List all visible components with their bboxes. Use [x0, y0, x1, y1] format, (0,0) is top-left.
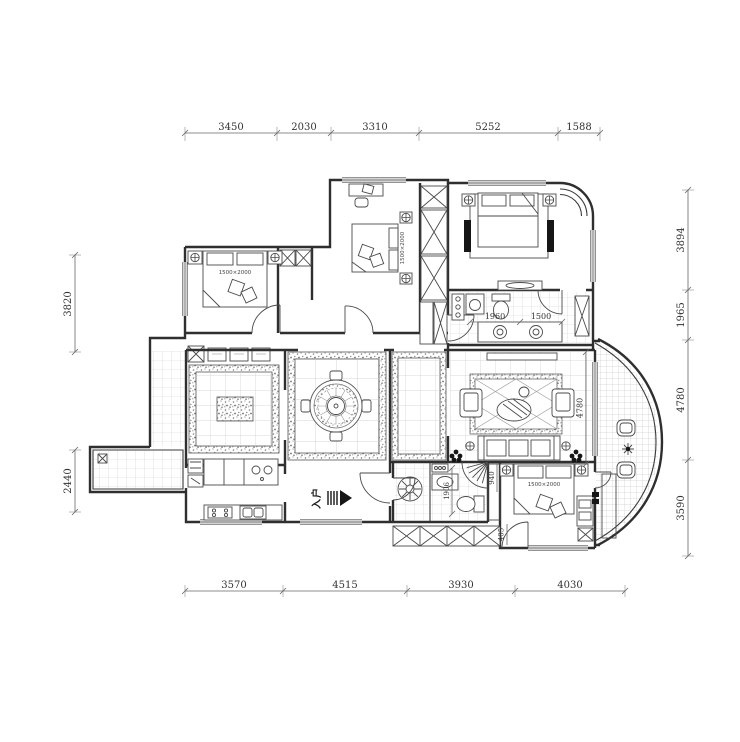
- pillow: [389, 228, 398, 248]
- bed-size-label: 1500×2000: [400, 231, 406, 264]
- toilet: [457, 497, 475, 512]
- curved-balcony-floor: [596, 341, 659, 545]
- bedroom-bottomright: 1500×2000: [500, 464, 599, 541]
- dim-top-5: 1588: [566, 122, 591, 133]
- dining-chair: [330, 371, 342, 380]
- dim-right-3: 4780: [676, 387, 687, 412]
- pillow: [237, 253, 263, 265]
- laundry-floor: [394, 464, 428, 520]
- master-bedroom: [462, 193, 556, 290]
- door-entry: [360, 473, 390, 503]
- coffee-table: [497, 399, 531, 421]
- dining-table: [328, 398, 345, 415]
- window: [590, 230, 597, 282]
- dim-living-height: 4780: [576, 398, 585, 418]
- vanity-counter: [478, 322, 562, 342]
- dim-right-4: 3590: [676, 495, 687, 520]
- desk-chair: [355, 198, 368, 207]
- door-bedroom-middle: [345, 306, 373, 333]
- entry-label: 入户: [310, 487, 323, 509]
- dim-bottom-1: 3570: [221, 580, 246, 591]
- window: [300, 519, 362, 526]
- toilet-tank: [474, 496, 484, 512]
- bedroom-topleft: 1500×2000: [188, 251, 282, 307]
- window: [182, 262, 189, 316]
- window: [468, 180, 546, 187]
- bed-size-label: 1500×2000: [528, 482, 561, 488]
- window: [528, 545, 588, 552]
- dim-bath-right: 1500: [531, 312, 551, 321]
- flower-bed-strip: [393, 526, 500, 546]
- fridge: [188, 459, 203, 473]
- area-rug: [217, 397, 253, 421]
- dim-left-2: 2440: [63, 468, 74, 493]
- dining-chair: [301, 400, 310, 412]
- door-bedroom-bottomright: [502, 522, 528, 548]
- pillow: [518, 466, 543, 478]
- dim-bath-left: 1960: [485, 312, 505, 321]
- dim-bottom-4: 4030: [557, 580, 582, 591]
- pillow: [207, 253, 233, 265]
- window: [592, 362, 599, 456]
- door-bedroom-topleft: [252, 305, 280, 333]
- hallway-floor: [152, 351, 185, 446]
- kitchen: [188, 459, 282, 520]
- dim-bottom-2: 4515: [332, 580, 357, 591]
- dim-door: 405: [498, 528, 506, 541]
- pillow: [389, 250, 398, 270]
- entry-hall: 入户: [310, 487, 352, 509]
- corridor: [392, 352, 446, 460]
- pillow: [546, 466, 571, 478]
- cabinet-row: [188, 346, 270, 362]
- dim-top-4: 5252: [475, 122, 500, 133]
- dining-chair: [362, 400, 371, 412]
- dim-closet: 940: [488, 471, 496, 484]
- dining-room: [288, 352, 386, 460]
- dim-left-1: 3820: [63, 291, 74, 316]
- dining-chair: [330, 432, 342, 441]
- washer: [466, 294, 484, 314]
- dim-right-1: 3894: [676, 227, 687, 252]
- tv-cabinet: [487, 353, 557, 360]
- toilet-tank: [492, 294, 510, 301]
- dim-top-1: 3450: [218, 122, 243, 133]
- family-room: [188, 346, 279, 453]
- entry-arrow-icon: [340, 490, 352, 506]
- floor-plan-drawing: 1500×2000 1500×2000: [0, 0, 740, 742]
- pillow: [482, 195, 506, 206]
- dim-bath2-height: 1906: [443, 482, 451, 500]
- dim-right-2: 1965: [676, 302, 687, 327]
- dim-top-3: 3310: [362, 122, 387, 133]
- left-balcony: [98, 454, 107, 463]
- bedroom-middle: 1500×2000: [349, 184, 412, 284]
- bed-size-label: 1500×2000: [219, 270, 252, 276]
- window: [342, 177, 406, 184]
- dim-bottom-3: 3930: [448, 580, 473, 591]
- dim-top-2: 2030: [291, 122, 316, 133]
- floor-plan-page: 1500×2000 1500×2000: [0, 0, 740, 742]
- kitchen-counter: [204, 459, 278, 485]
